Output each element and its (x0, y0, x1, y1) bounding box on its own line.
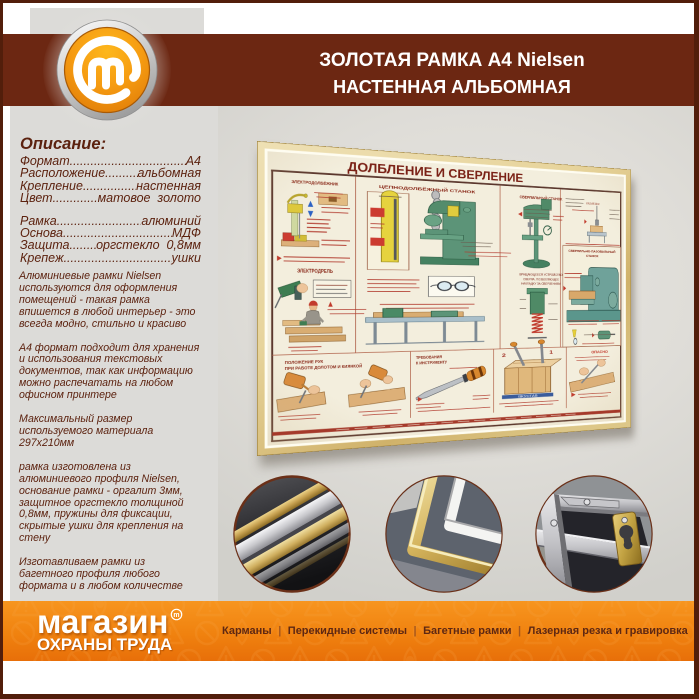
svg-text:m: m (173, 612, 179, 619)
